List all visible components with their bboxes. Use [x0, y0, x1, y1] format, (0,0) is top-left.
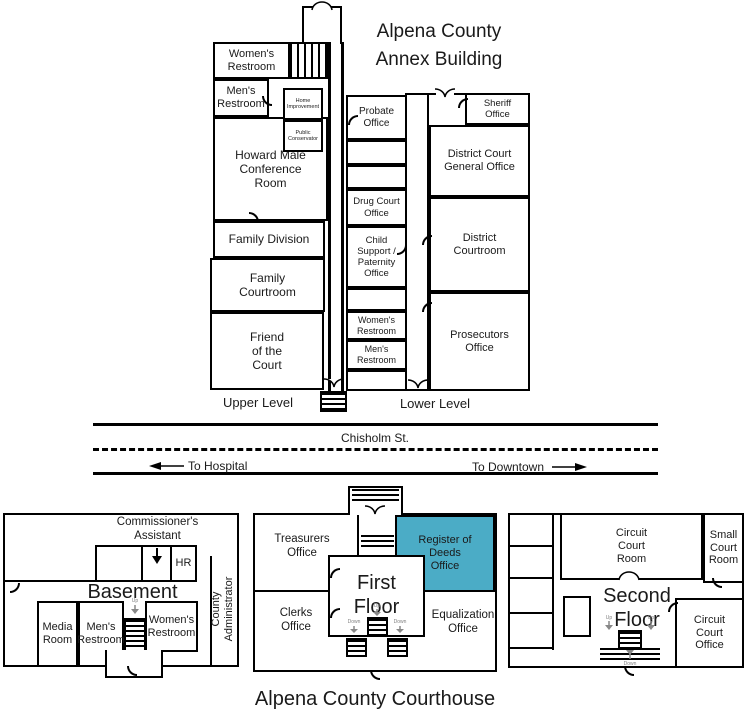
- stairs-arrow-down-icon: [604, 621, 614, 631]
- stairs-arrow-down-icon: [646, 621, 656, 631]
- room-drug-court-office: Drug Court Office: [346, 189, 407, 226]
- stairs-arrow-up-icon: [625, 649, 635, 659]
- upper-level-label: Upper Level: [208, 394, 308, 412]
- stairs-arrow-down-icon: [372, 609, 382, 617]
- annex-corridor: [328, 42, 344, 391]
- hallway-wall: [405, 93, 436, 95]
- room-equalization-office: Equalization Office: [428, 604, 498, 642]
- commissioners-assistant-label: Commissioner's Assistant: [90, 516, 225, 544]
- second-floor-wall: [508, 647, 554, 649]
- hallway-wall: [405, 389, 429, 391]
- lobby-stairs: [361, 535, 394, 549]
- room-friend-of-the-court: Friend of the Court: [210, 312, 324, 390]
- door-arc: [370, 670, 380, 680]
- street-centerline: [93, 448, 658, 451]
- room-family-division: Family Division: [213, 221, 325, 258]
- room-lower-womens-restroom: Women's Restroom: [346, 311, 407, 340]
- left-stairs: [346, 638, 367, 657]
- annex-vestibule: [302, 6, 342, 44]
- county-administrator-label: County Administrator: [210, 549, 236, 669]
- room-unlabeled: [95, 545, 143, 582]
- door-arc: [458, 98, 468, 108]
- room-annex-mens-restroom: Men's Restroom: [213, 79, 269, 117]
- double-door-arc: [618, 571, 640, 581]
- second-floor-wall: [552, 513, 554, 650]
- annex-title: Alpena County Annex Building: [330, 14, 548, 78]
- to-hospital-label: To Hospital: [188, 458, 268, 474]
- room-child-support: Child Support / Paternity Office: [346, 226, 407, 288]
- room-district-court-general: District Court General Office: [429, 125, 530, 197]
- room-media-room: Media Room: [37, 601, 78, 667]
- arrow-right-icon: [552, 462, 588, 472]
- street-edge-top: [93, 423, 658, 426]
- to-downtown-label: To Downtown: [468, 459, 548, 475]
- door-arc: [422, 302, 432, 312]
- room-annex-womens-restroom: Women's Restroom: [213, 42, 290, 79]
- room-unlabeled: [346, 165, 407, 189]
- courthouse-title: Alpena County Courthouse: [175, 686, 575, 712]
- room-circuit-court-office: Circuit Court Office: [675, 598, 744, 668]
- room-circuit-court-room: Circuit Court Room: [560, 513, 703, 580]
- room-home-improvement: Home Improvement: [283, 88, 323, 120]
- right-stairs: [387, 638, 408, 657]
- room-unlabeled: [563, 596, 591, 637]
- room-lower-mens-restroom: Men's Restroom: [346, 340, 407, 370]
- basement-stairs-up-label: Up: [128, 598, 142, 604]
- double-door-arc: [434, 88, 456, 98]
- room-unlabeled: [346, 370, 407, 391]
- room-unlabeled: [346, 288, 407, 311]
- room-family-courtroom: Family Courtroom: [210, 258, 325, 312]
- stairs-down-right-label: Down: [390, 619, 410, 625]
- entry-stairs: [352, 489, 399, 501]
- annex-upper-stairwell: [290, 42, 328, 79]
- second-floor-wall: [508, 545, 554, 547]
- room-district-courtroom: District Courtroom: [429, 197, 530, 292]
- arrow-left-icon: [148, 461, 184, 471]
- stairs-arrow-down-icon: [349, 626, 359, 634]
- second-floor-wall: [508, 577, 554, 579]
- door-arc: [624, 666, 634, 676]
- stairs-arrow-down-icon: [130, 605, 140, 615]
- lower-level-label: Lower Level: [385, 395, 485, 413]
- stairs-down-left-label: Down: [344, 619, 364, 625]
- lobby-wall: [357, 515, 359, 557]
- stairs-arrow-down-icon: [395, 626, 405, 634]
- door-arc: [422, 235, 432, 245]
- basement-stairs: [124, 618, 146, 652]
- double-door-arc: [407, 379, 429, 389]
- room-unlabeled: [346, 140, 407, 165]
- street-edge-bottom: [93, 472, 658, 475]
- room-sheriff-office: Sheriff Office: [465, 93, 530, 125]
- first-floor-wall: [253, 590, 330, 592]
- room-prosecutors-office: Prosecutors Office: [429, 292, 530, 391]
- room-hr: HR: [170, 545, 197, 582]
- double-door-arc: [311, 1, 333, 11]
- double-door-arc: [364, 505, 386, 515]
- room-basement-womens-restroom: Women's Restroom: [145, 601, 198, 652]
- center-stairs: [367, 617, 388, 637]
- room-small-court-room: Small Court Room: [703, 513, 744, 583]
- street-name-label: Chisholm St.: [320, 431, 430, 445]
- annex-corridor-stairs: [320, 391, 347, 412]
- second-floor-wall: [508, 612, 554, 614]
- pointer-arrow-down-icon: [151, 548, 163, 565]
- room-public-conservator: Public Conservator: [283, 120, 323, 152]
- double-door-arc: [323, 378, 345, 388]
- floorplan-canvas: Alpena County Annex Building Howard Male…: [0, 0, 750, 726]
- room-clerks-office: Clerks Office: [260, 602, 332, 640]
